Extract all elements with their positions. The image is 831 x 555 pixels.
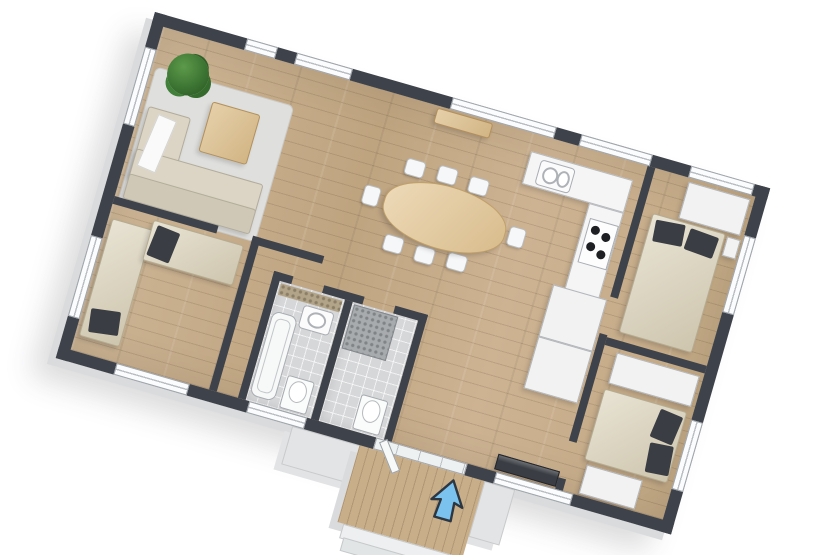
floorplan-canvas — [0, 0, 831, 555]
bed-pillow — [88, 308, 121, 336]
building — [56, 12, 770, 534]
